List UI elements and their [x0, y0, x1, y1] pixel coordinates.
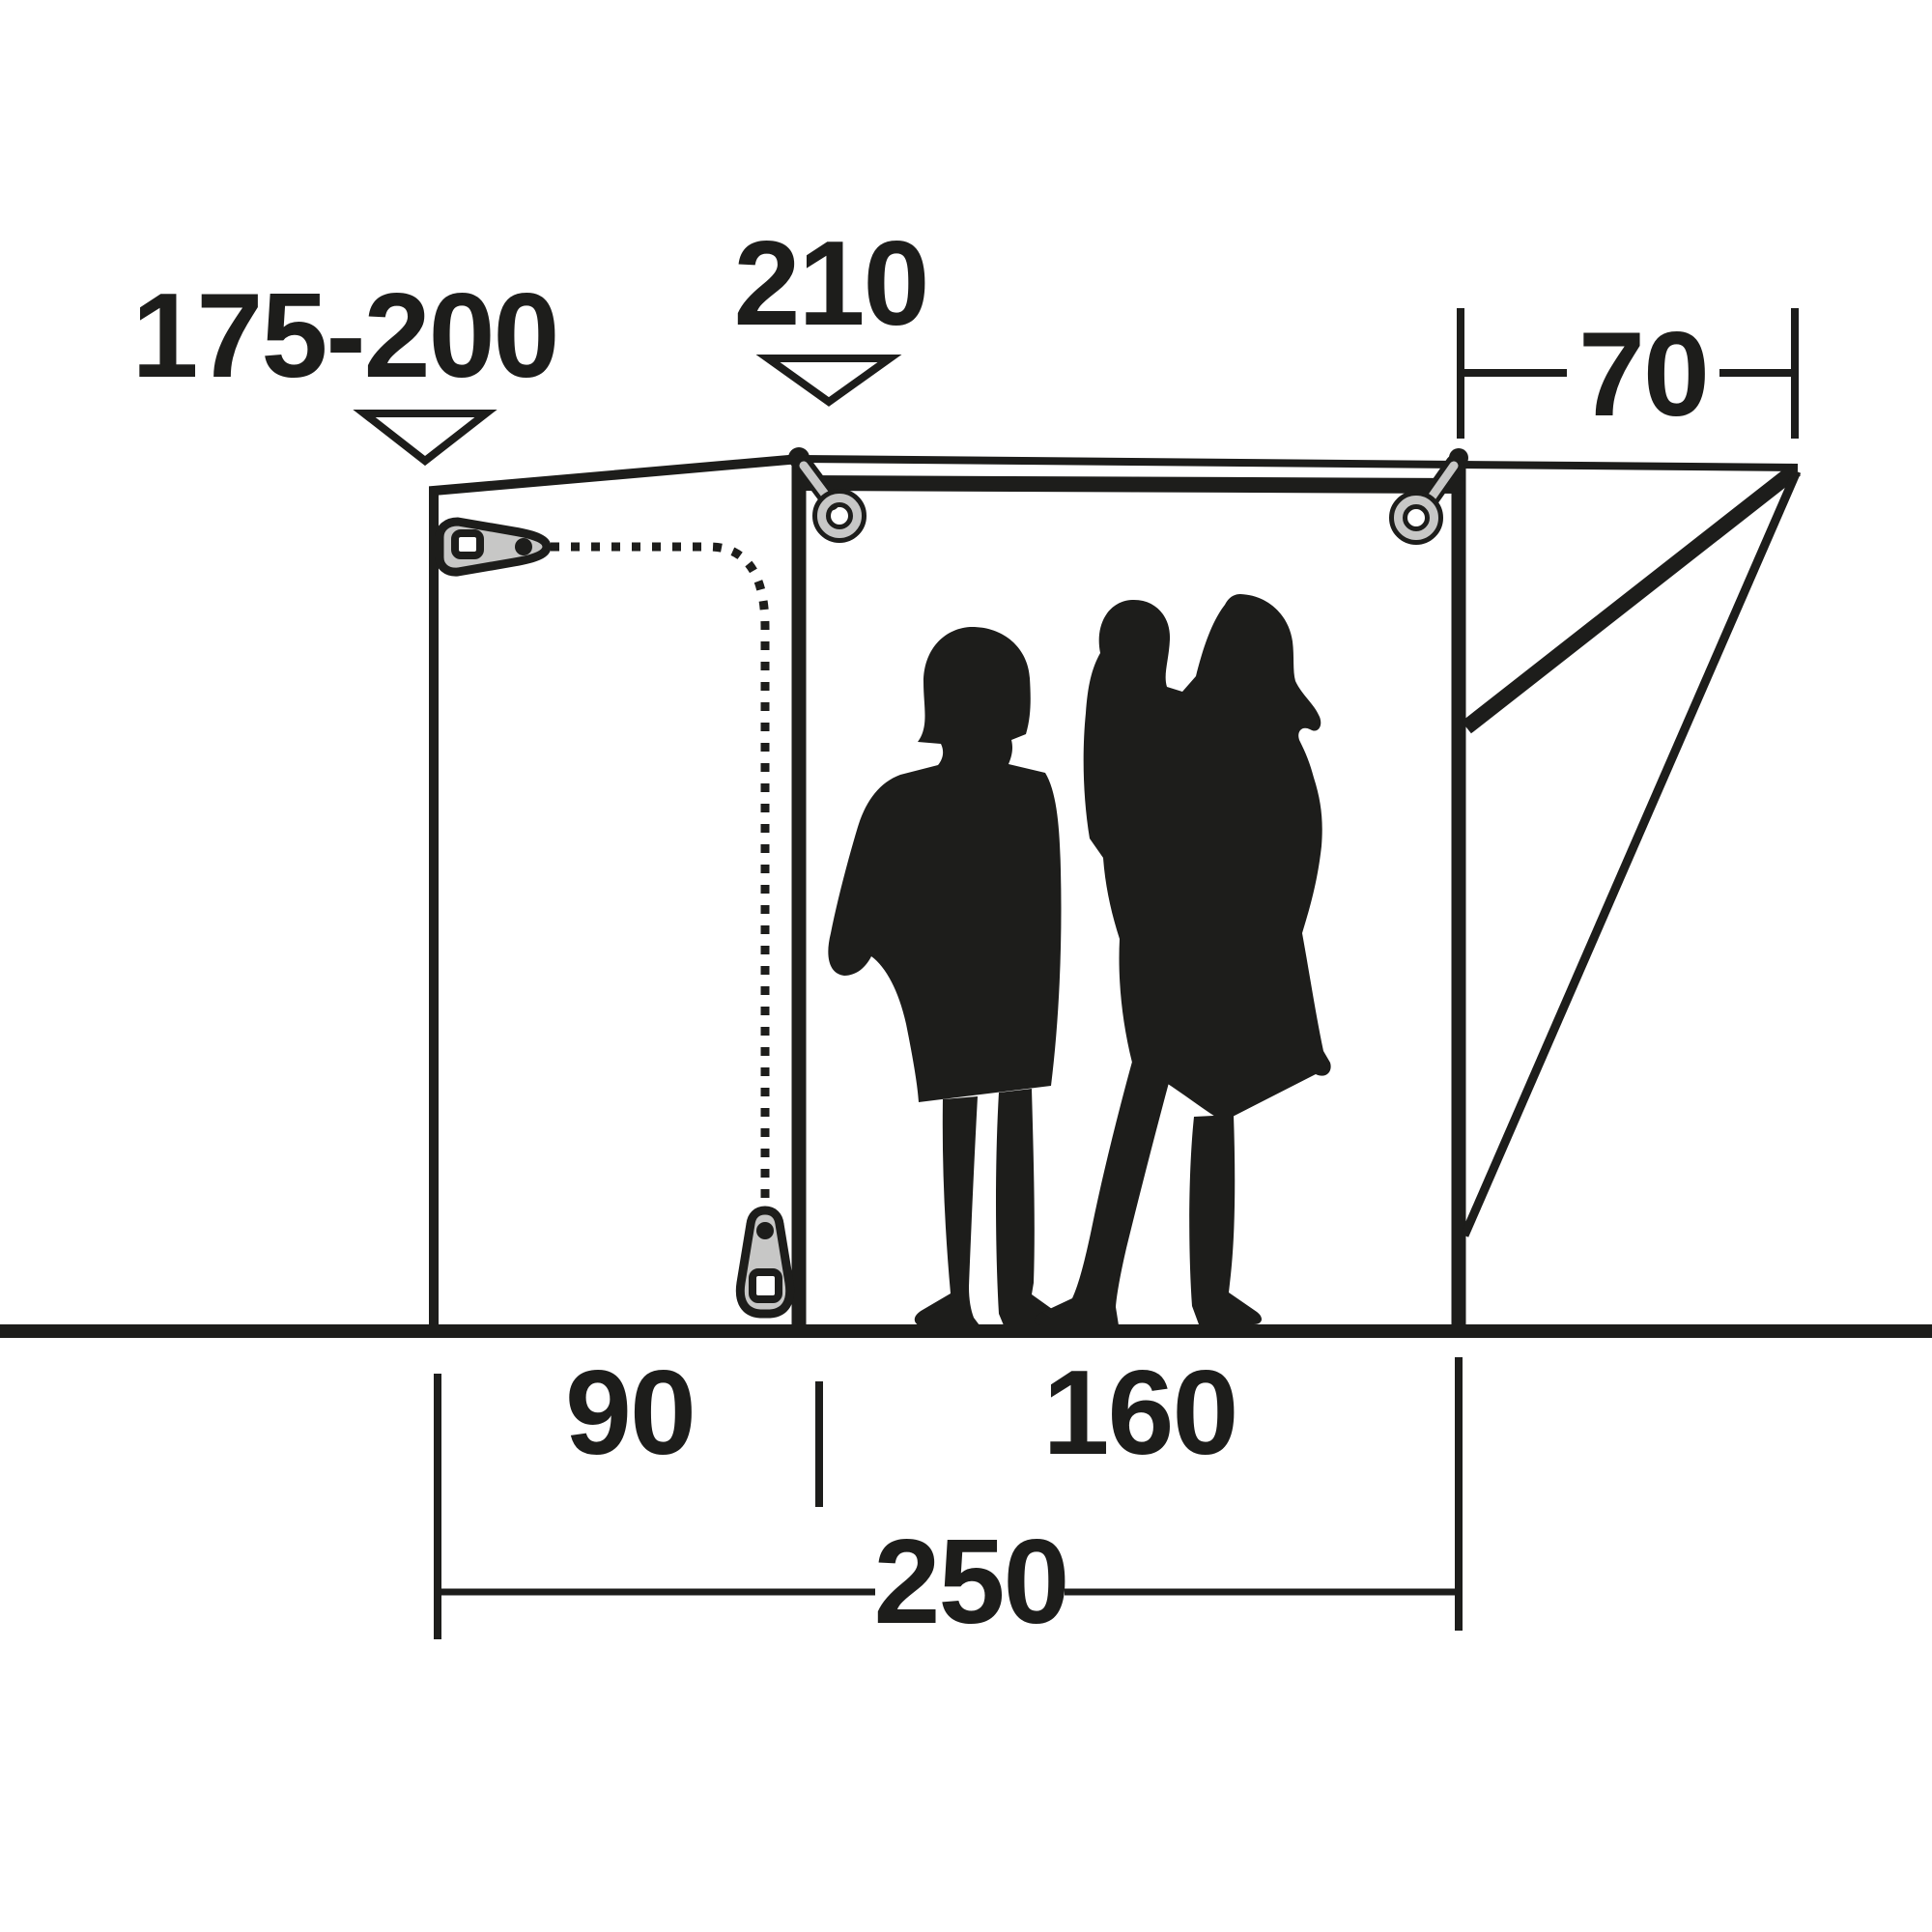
zipper-pull-bottom-icon — [740, 1210, 789, 1314]
pointer-triangle-center-icon — [768, 358, 890, 402]
dim-label-peak-height: 210 — [734, 217, 928, 351]
family-silhouette — [828, 594, 1330, 1325]
grommet-left — [803, 464, 865, 541]
pointer-triangle-left-icon — [364, 413, 486, 461]
ground-line — [0, 1324, 1932, 1338]
adult-with-child-silhouette — [1035, 594, 1331, 1325]
front-top-bar — [801, 483, 1463, 486]
zipper — [440, 522, 790, 1314]
adult-silhouette — [828, 627, 1064, 1325]
grommet-ring-left-icon — [815, 492, 865, 541]
dim-70: 70 — [1461, 308, 1795, 441]
side-wing-lower-line — [1464, 471, 1797, 1236]
dim-label-side-depth: 70 — [1578, 308, 1708, 441]
dimension-diagram: 175-200 210 70 90 160 250 — [0, 0, 1932, 1932]
dim-label-total-width: 250 — [874, 1516, 1068, 1649]
dim-bottom-widths: 90 160 250 — [438, 1347, 1459, 1649]
roof-edge-line — [800, 459, 1798, 468]
grommet-ring-right-icon — [1392, 494, 1441, 543]
side-wing-upper-line — [1466, 469, 1796, 727]
zipper-track-dotted-icon — [551, 547, 765, 1206]
dim-label-front-section: 160 — [1043, 1347, 1237, 1480]
diagram-svg: 175-200 210 70 90 160 250 — [0, 0, 1932, 1932]
zipper-pull-top-icon — [440, 522, 547, 572]
dim-label-height-range: 175-200 — [131, 270, 557, 403]
grommet-right — [1392, 464, 1456, 543]
dim-label-left-section: 90 — [565, 1347, 695, 1480]
left-side-panel — [434, 459, 800, 1333]
